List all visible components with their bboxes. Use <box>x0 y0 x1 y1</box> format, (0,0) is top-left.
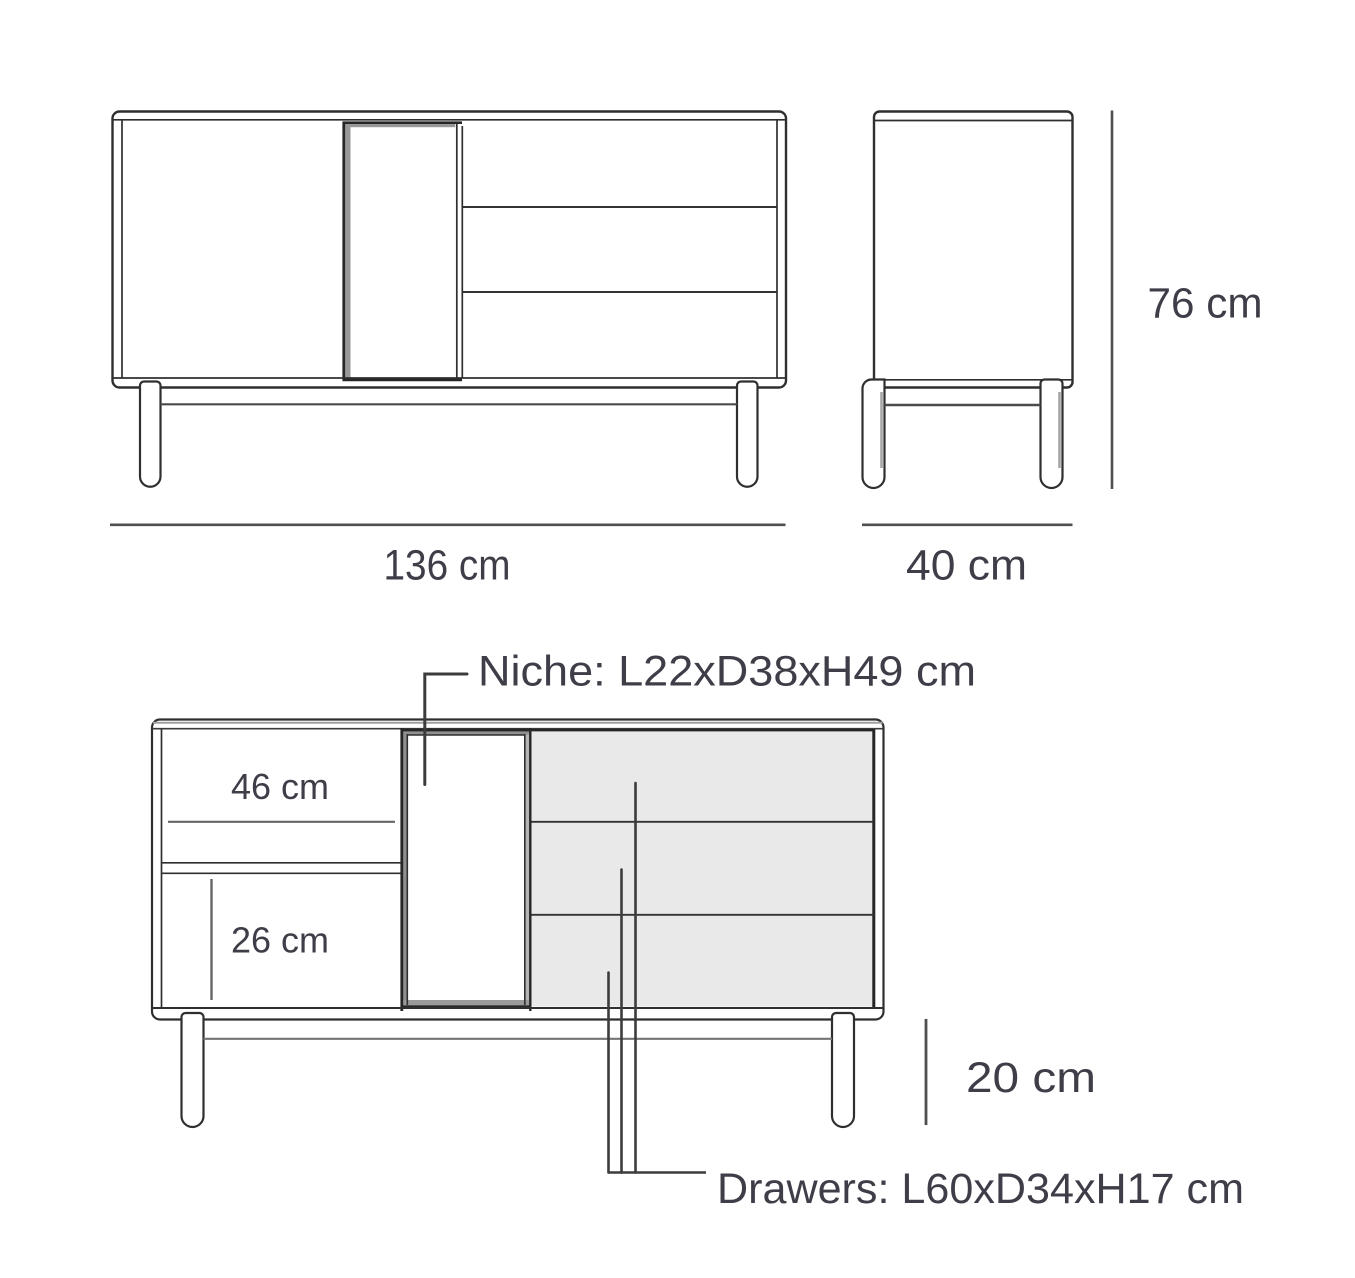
svg-text:40 cm: 40 cm <box>906 543 1027 590</box>
svg-text:20 cm: 20 cm <box>966 1055 1096 1102</box>
svg-text:76 cm: 76 cm <box>1148 281 1263 328</box>
svg-text:Drawers: L60xD34xH17 cm: Drawers: L60xD34xH17 cm <box>717 1166 1244 1213</box>
svg-text:Niche: L22xD38xH49 cm: Niche: L22xD38xH49 cm <box>478 649 976 696</box>
svg-text:26 cm: 26 cm <box>231 920 329 961</box>
svg-text:46 cm: 46 cm <box>231 766 329 807</box>
svg-text:136 cm: 136 cm <box>384 543 511 590</box>
